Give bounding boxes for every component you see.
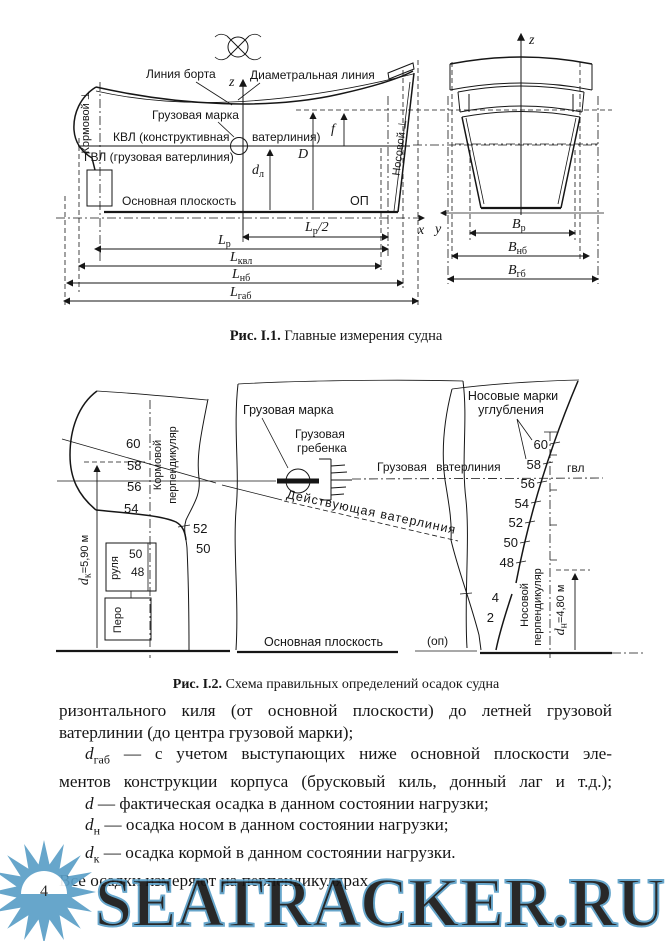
figure-1-caption: Рис. I.1. Главные измерения судна [0, 328, 672, 345]
z-axis-label-2: z [528, 33, 535, 48]
load-comb-label-line1: Грузовая [295, 427, 345, 441]
bow-perpendicular-word1: Носовой [519, 583, 531, 627]
stern-contour-2 [70, 391, 97, 510]
dim-lgab-label: Lгаб [229, 285, 251, 302]
page-number: 4 [40, 883, 48, 900]
bow-draft-mark: 54 [515, 496, 529, 511]
dim-lp2-label: Lр/2 [304, 220, 329, 237]
body-text: ризонтального киля (от основной плоскост… [59, 700, 612, 892]
base-plane-label: Основная плоскость [122, 194, 236, 208]
dim-lnb-label: Lнб [231, 267, 250, 284]
x-axis-label: x [417, 223, 425, 238]
bow-draft-mark: 52 [509, 515, 523, 530]
y-axis-label: y [433, 222, 442, 237]
load-waterline-label: Грузовая ватерлиния [377, 460, 501, 474]
rudder-draft-mark: 48 [131, 565, 145, 579]
figure-1-caption-number: Рис. I.1. [230, 328, 281, 344]
load-comb-label-line2: гребенка [297, 441, 347, 455]
body-line-dn: dн — осадка носом в данном состоянии наг… [59, 814, 612, 842]
op-label: ОП [350, 194, 369, 208]
kvl-label-right: ватерлиния) [252, 130, 320, 144]
figure-2-caption: Рис. I.2. Схема правильных определений о… [0, 677, 672, 693]
x-axis: x [56, 218, 425, 238]
stern-perpendicular-label: Кормовой ⊥ [80, 91, 92, 154]
bow-perpendicular-label: Носовой ⊥ [391, 119, 410, 176]
gvl-label: ГВЛ (грузовая ватерлиния) [84, 150, 234, 164]
rudder-blade: 50 48 руля Перо [105, 543, 156, 640]
bow-draft-mark: 60 [534, 437, 548, 452]
rudder-label-word2: руля [109, 556, 121, 580]
stern-draft-mark: 54 [124, 501, 138, 516]
body-line: ватерлинии (до центра грузовой марки); [59, 722, 612, 744]
stern-perpendicular-word2: перпендикуляр [167, 426, 179, 504]
bow-draft-mark: 56 [521, 476, 535, 491]
freeboard-arrow: f [331, 114, 344, 146]
stern-draft-mark: 58 [127, 458, 141, 473]
dim-lp-label: Lр [217, 233, 231, 250]
depth-label: D [297, 147, 308, 162]
dim-lkvl-label: Lквл [229, 250, 252, 267]
bow-left-torn-edge [443, 389, 481, 650]
figure-1-caption-text: Главные измерения судна [284, 328, 442, 344]
midship-left-torn-edge [235, 384, 238, 650]
draft-label: dл [252, 163, 264, 180]
bow-draft-mark: 2 [487, 610, 494, 625]
breadth-dimensions: Bр Bнб Bгб [448, 217, 598, 280]
gvl-small-label: гвл [567, 461, 584, 475]
scanned-book-page: z x [0, 0, 672, 941]
depth-arrow: D [297, 113, 313, 210]
dim-bp-label: Bр [512, 217, 526, 234]
dim-bnb-label: Bнб [508, 240, 527, 257]
dim-bgb-label: Bгб [508, 263, 526, 280]
cross-section: z y Bр Bнб Bг [433, 33, 604, 284]
bow-marks-label-line1: Носовые марки [468, 389, 558, 403]
skeg-draft-mark: 50 [196, 541, 210, 556]
op-small-label: (оп) [427, 634, 448, 648]
body-line: ризонтального киля (от основной плоскост… [59, 700, 612, 722]
body-line-dgab: dгаб — с учетом выступающих ниже основно… [59, 743, 612, 771]
figure-2-draft-marks-diagram: 60 58 56 54 52 50 Кормовой перпендикуляр… [0, 370, 672, 670]
bow-draft-mark: 58 [527, 457, 541, 472]
skeg-draft-mark: 52 [193, 521, 207, 536]
bow-draft-mark: 48 [500, 555, 514, 570]
length-dimensions: Lр/2 Lр Lквл Lнб Lгаб [64, 220, 418, 302]
z-axis-label: z [228, 75, 235, 90]
midship-right-torn-edge [463, 381, 467, 648]
body-line-dk: dк — осадка кормой в данном состоянии на… [59, 842, 612, 870]
base-plane-label-2: Основная плоскость [264, 635, 383, 649]
load-mark-label-2: Грузовая марка [243, 403, 334, 417]
bow-perpendicular-word2: перпендикуляр [532, 568, 544, 646]
bow-strip: 60 58 56 54 52 50 48 4 2 Носовые марки у… [415, 380, 644, 658]
load-mark-label: Грузовая марка [152, 108, 239, 122]
rudder-label-word1: Перо [112, 607, 124, 633]
bow-draft-mark: 50 [504, 535, 518, 550]
bow-draft-value: dн=4,80 м [553, 585, 570, 636]
kvl-label-left: КВЛ (конструктивная [113, 130, 230, 144]
stern-strip: 60 58 56 54 52 50 Кормовой перпендикуляр… [56, 391, 230, 658]
bow-marks-label-line2: углубления [478, 403, 544, 417]
draft-arrow: dл [252, 150, 270, 210]
figure-1-main-dimensions-diagram: z x [0, 0, 672, 322]
body-line: ментов конструкции корпуса (брусковый ки… [59, 771, 612, 793]
bow-draft-mark: 4 [492, 590, 499, 605]
section-symbol-icon [215, 34, 261, 60]
sheer-line-label: Линия борта [146, 67, 216, 81]
figure-2-caption-number: Рис. I.2. [173, 677, 222, 692]
diametral-line-label: Диаметральная линия [250, 68, 375, 82]
actual-waterline-label: Действующая ватерлиния [285, 487, 457, 537]
body-line: Все осадки измеряют на перпендикулярах. [59, 870, 612, 892]
freeboard-label: f [331, 122, 337, 137]
stern-draft-mark: 60 [126, 436, 140, 451]
stern-draft-value: dк=5,90 м [77, 535, 94, 585]
body-line-d: d — фактическая осадка в данном состояни… [59, 793, 612, 815]
rudder-draft-mark: 50 [129, 547, 143, 561]
figure-2-caption-text: Схема правильных определений осадок судн… [226, 677, 500, 692]
rudder [87, 170, 112, 206]
